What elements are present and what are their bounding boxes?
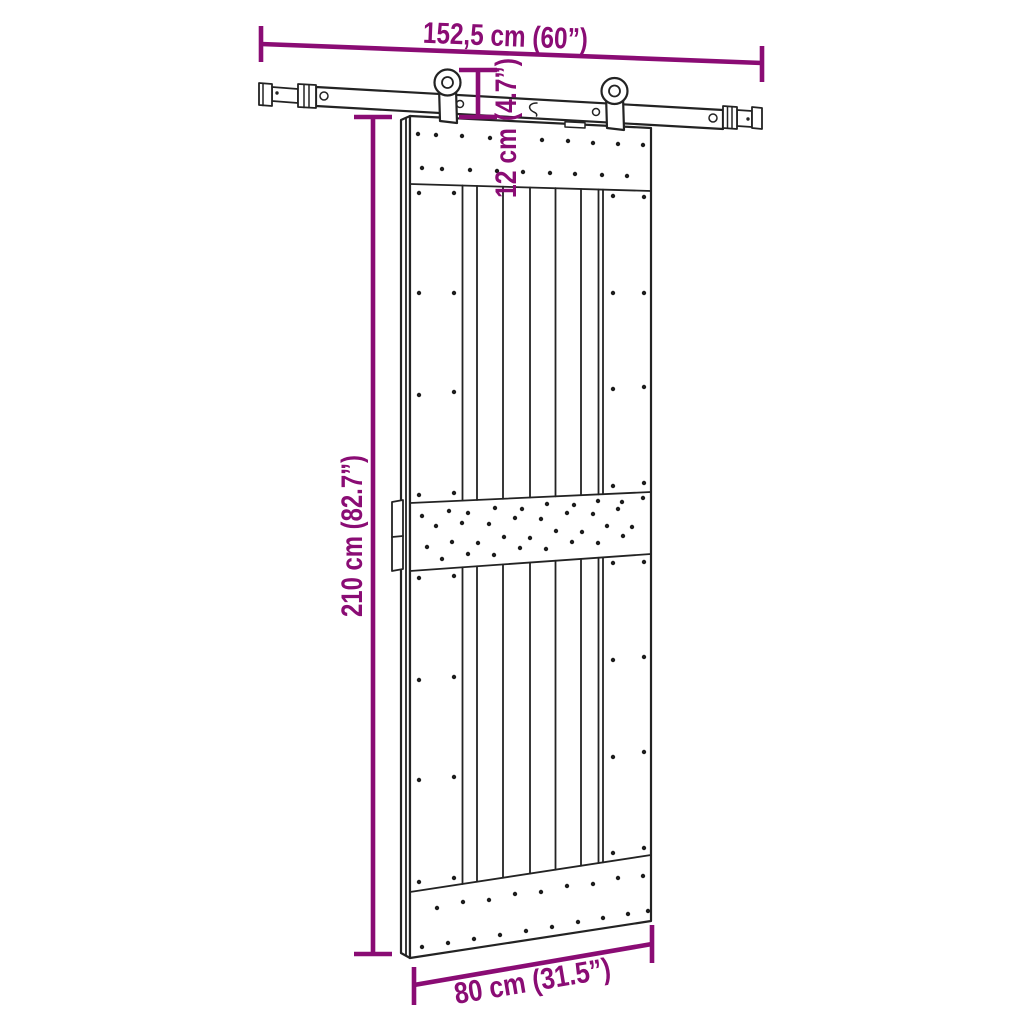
screw-dot [616, 142, 620, 146]
screw-dot [513, 892, 517, 896]
screw-dot [425, 545, 429, 549]
barn-door [392, 116, 651, 958]
screw-dot [625, 174, 629, 178]
screw-dot [539, 890, 543, 894]
screw-dot [417, 393, 421, 397]
screw-dot [520, 507, 524, 511]
screw-dot [420, 945, 424, 949]
screw-dot [616, 507, 620, 511]
screw-dot [452, 390, 456, 394]
screw-dot [518, 546, 522, 550]
screw-dot [630, 525, 634, 529]
screw-dot [642, 846, 646, 850]
screw-dot [440, 167, 444, 171]
screw-dot [642, 481, 646, 485]
screw-dot [476, 541, 480, 545]
screw-dot [642, 195, 646, 199]
screw-dot [450, 540, 454, 544]
screw-dot [554, 529, 558, 533]
roller-hub-left [442, 77, 453, 88]
screw-dot [611, 658, 615, 662]
screw-dot [566, 139, 570, 143]
screw-dot [596, 541, 600, 545]
screw-dot [417, 493, 421, 497]
screw-dot [466, 552, 470, 556]
hanger-offset-label: 12 cm (4.7”) [490, 58, 523, 198]
screw-dot [611, 291, 615, 295]
screw-dot [642, 385, 646, 389]
screw-dot [641, 496, 645, 500]
barn-door-dimension-diagram: 152,5 cm (60”) 12 cm (4.7”) 210 cm (82.7… [0, 0, 1024, 1024]
screw-dot [641, 143, 645, 147]
screw-dot [591, 882, 595, 886]
screw-dot [621, 534, 625, 538]
screw-dot [641, 874, 645, 878]
screw-dot [492, 553, 496, 557]
screw-dot [460, 134, 464, 138]
screw-dot [461, 900, 465, 904]
screw-dot [417, 880, 421, 884]
screw-dot [565, 511, 569, 515]
screw-dot [460, 521, 464, 525]
screw-dot [570, 540, 574, 544]
screw-dot [642, 560, 646, 564]
screw-dot [452, 775, 456, 779]
screw-dot [452, 291, 456, 295]
roller-hub-right [609, 86, 620, 97]
screw-dot [611, 561, 615, 565]
screw-dot [487, 898, 491, 902]
screw-dot [611, 387, 615, 391]
screw-dot [580, 530, 584, 534]
screw-dot [420, 166, 424, 170]
screw-dot [446, 941, 450, 945]
screw-dot [539, 517, 543, 521]
diagram-canvas: 152,5 cm (60”) 12 cm (4.7”) 210 cm (82.7… [0, 0, 1024, 1024]
rail-length-label: 152,5 cm (60”) [422, 17, 588, 57]
screw-dot [528, 536, 532, 540]
screw-dot [447, 509, 451, 513]
screw-dot [548, 171, 552, 175]
screw-dot [468, 168, 472, 172]
screw-dot [646, 909, 650, 913]
screw-dot [611, 755, 615, 759]
screw-dot [642, 291, 646, 295]
screw-dot [576, 920, 580, 924]
screw-dot [417, 191, 421, 195]
screw-dot [416, 132, 420, 136]
screw-dot [524, 929, 528, 933]
screw-dot [642, 655, 646, 659]
screw-dot [611, 851, 615, 855]
screw-dot [611, 484, 615, 488]
door-height-label: 210 cm (82.7”) [336, 455, 369, 617]
screw-dot [452, 191, 456, 195]
screw-dot [565, 884, 569, 888]
screw-dot [417, 778, 421, 782]
screw-dot [600, 173, 604, 177]
screw-dot [596, 499, 600, 503]
screw-dot [591, 512, 595, 516]
screw-dot [466, 511, 470, 515]
screw-dot [452, 491, 456, 495]
screw-dot [417, 678, 421, 682]
screw-dot [513, 516, 517, 520]
screw-dot [545, 502, 549, 506]
door-width-label: 80 cm (31.5”) [452, 952, 613, 1011]
screw-dot [420, 514, 424, 518]
screw-dot [498, 933, 502, 937]
screw-dot [642, 750, 646, 754]
screw-dot [452, 675, 456, 679]
screw-dot [626, 912, 630, 916]
rail-end-stop-right [723, 106, 762, 129]
screw-dot [493, 506, 497, 510]
screw-dot [434, 133, 438, 137]
screw-dot [616, 876, 620, 880]
screw-dot [611, 194, 615, 198]
screw-dot [452, 876, 456, 880]
dimension-door-height: 210 cm (82.7”) [336, 117, 392, 954]
screw-dot [544, 547, 548, 551]
screw-dot [472, 937, 476, 941]
screw-dot [434, 524, 438, 528]
door-handle [392, 500, 403, 571]
screw-dot [540, 138, 544, 142]
screw-dot [440, 557, 444, 561]
screw-dot [435, 906, 439, 910]
screw-dot [605, 524, 609, 528]
screw-dot [572, 503, 576, 507]
screw-dot [452, 574, 456, 578]
top-edge-bracket [565, 122, 585, 128]
screw-dot [573, 172, 577, 176]
screw-dot [417, 291, 421, 295]
rail-end-stop-left [259, 83, 316, 108]
screw-dot [550, 925, 554, 929]
screw-dot [487, 522, 491, 526]
screw-dot [591, 141, 595, 145]
screw-dot [620, 500, 624, 504]
screw-dot [601, 916, 605, 920]
screw-dot [417, 576, 421, 580]
screw-dot [502, 535, 506, 539]
